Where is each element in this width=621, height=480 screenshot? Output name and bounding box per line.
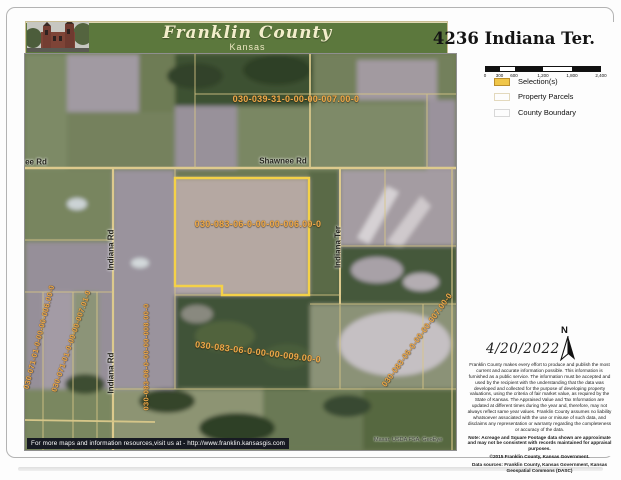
scale-tick: 0 <box>484 73 487 78</box>
parcel-id-label: 030-039-31-0-00-00-007.00-0 <box>233 94 360 104</box>
legend-label: Property Parcels <box>518 92 573 101</box>
courthouse-photo-icon <box>27 22 89 52</box>
road-label: ee Rd <box>25 158 47 167</box>
selected-parcel-outline <box>175 178 309 295</box>
data-sources-line: Data sources: Franklin County, Kansas Go… <box>467 462 612 474</box>
copyright-line: ©2015 Franklin County, Kansas Government… <box>467 454 612 460</box>
map-date: 4/20/2022 <box>486 341 560 357</box>
imagery-attribution: Maxar, USDA FSA, GeoEye <box>374 437 442 443</box>
parcels-swatch-icon <box>494 93 510 101</box>
county-swatch-icon <box>494 109 510 117</box>
aerial-imagery <box>25 54 456 450</box>
parcel-id-label: 030-083-06-0-00-00-008.00-0 <box>142 304 151 411</box>
disclaimer-note: Note: Acreage and Square Footage data sh… <box>467 435 612 453</box>
road-label: Indiana Rd <box>107 230 116 271</box>
legend-item-selection: Selection(s) <box>494 77 558 86</box>
legend-label: Selection(s) <box>518 77 558 86</box>
disclaimer-block: Franklin County makes every effort to pr… <box>467 362 612 474</box>
selection-swatch-icon <box>494 78 510 86</box>
road-label: Shawnee Rd <box>259 157 307 166</box>
road-label: Indiana Rd <box>107 353 116 394</box>
scale-tick: 2,400 <box>595 73 606 78</box>
parcel-id-label-selected: 030-083-06-0-00-00-006.00-0 <box>195 219 322 229</box>
state-name: Kansas <box>229 43 265 52</box>
page-title: 4236 Indiana Ter. <box>433 29 595 48</box>
county-header-banner: Franklin County Kansas <box>25 21 448 55</box>
scale-tick: 1,800 <box>566 73 577 78</box>
legend-label: County Boundary <box>518 108 576 117</box>
parcel-map[interactable] <box>24 53 457 451</box>
legend-item-property-parcels: Property Parcels <box>494 92 573 101</box>
disclaimer-text: Franklin County makes every effort to pr… <box>467 362 612 433</box>
county-name: Franklin County <box>163 25 332 42</box>
legend-item-county-boundary: County Boundary <box>494 108 576 117</box>
footer-banner-link[interactable]: For more maps and information resources,… <box>27 438 289 449</box>
road-label: Indiana Ter <box>334 226 343 268</box>
